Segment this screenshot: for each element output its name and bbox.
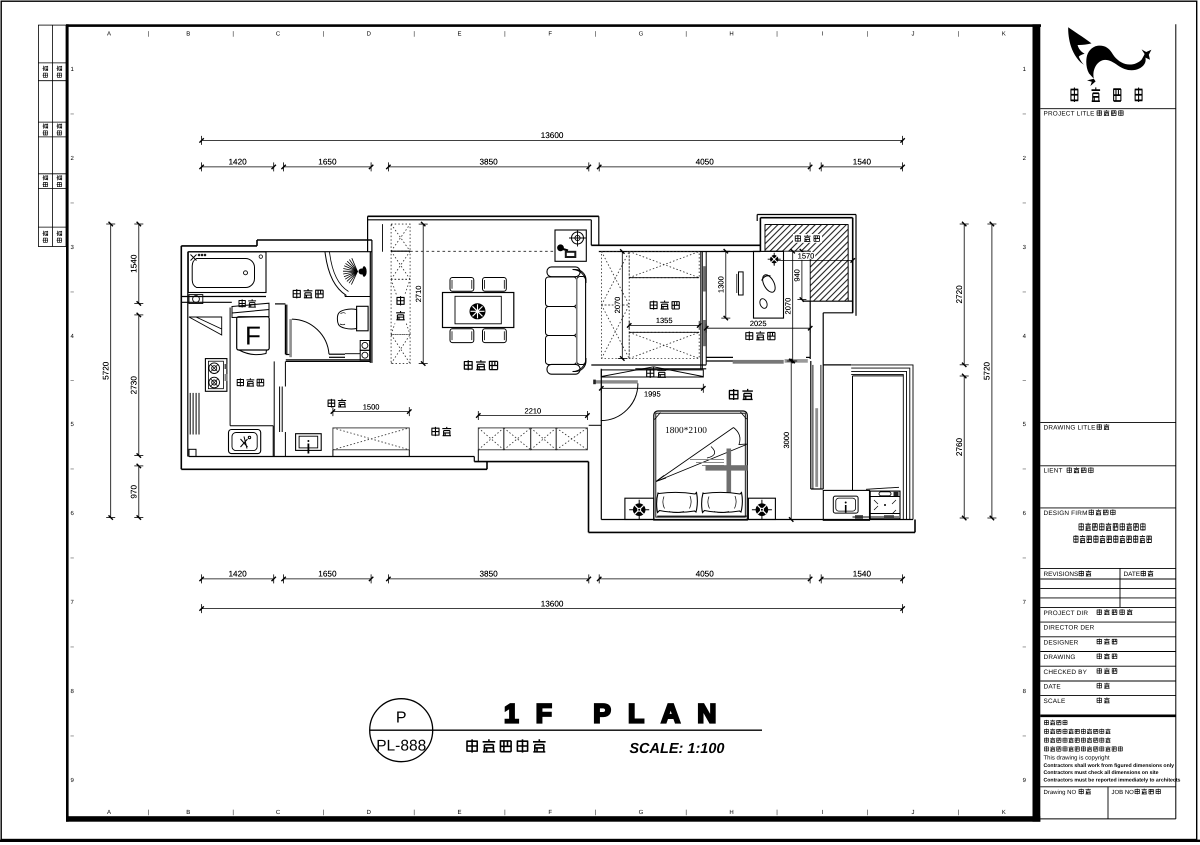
svg-text:D: D	[367, 31, 372, 38]
svg-text:5720: 5720	[102, 361, 111, 380]
svg-text:E: E	[457, 31, 461, 38]
svg-text:F: F	[548, 31, 552, 38]
svg-text:1995: 1995	[644, 389, 661, 398]
svg-text:3850: 3850	[479, 158, 498, 167]
svg-text:F: F	[245, 321, 261, 351]
svg-text:PL-888: PL-888	[376, 738, 426, 755]
svg-text:Drawing NO: Drawing NO	[1044, 789, 1077, 796]
svg-text:1540: 1540	[853, 570, 872, 579]
svg-text:13600: 13600	[541, 131, 564, 140]
svg-text:Contractors shall work from fi: Contractors shall work from figured dime…	[1044, 763, 1175, 769]
svg-text:1300: 1300	[717, 276, 726, 293]
svg-text:PROJECT LITLE: PROJECT LITLE	[1044, 111, 1095, 118]
svg-text:1800*2100: 1800*2100	[665, 426, 707, 436]
svg-text:3000: 3000	[782, 432, 791, 449]
svg-text:1650: 1650	[318, 158, 337, 167]
svg-text:H: H	[729, 809, 733, 816]
svg-text:2710: 2710	[414, 286, 423, 303]
svg-text:DESIGNER: DESIGNER	[1044, 639, 1079, 646]
svg-text:E: E	[457, 809, 461, 816]
svg-text:A: A	[107, 31, 111, 38]
svg-text:PROJECT DIR: PROJECT DIR	[1044, 610, 1089, 617]
svg-text:1F PLAN: 1F PLAN	[504, 699, 733, 729]
svg-text:Contractors must check all dim: Contractors must check all dimensions on…	[1044, 770, 1159, 776]
svg-text:K: K	[1002, 809, 1006, 816]
svg-text:2730: 2730	[130, 376, 139, 395]
svg-text:2070: 2070	[784, 298, 793, 315]
svg-text:DATE: DATE	[1044, 684, 1061, 691]
svg-text:2025: 2025	[750, 319, 767, 328]
svg-text:Contractors must be reported i: Contractors must be reported immediately…	[1044, 777, 1181, 783]
svg-text:DESIGN FIRM: DESIGN FIRM	[1044, 510, 1088, 517]
svg-text:970: 970	[130, 485, 139, 499]
svg-text:SCALE: SCALE	[1044, 698, 1066, 705]
svg-text:1650: 1650	[318, 570, 337, 579]
svg-text:DATE: DATE	[1124, 571, 1141, 578]
svg-text:F: F	[548, 809, 552, 816]
svg-text:J: J	[912, 31, 915, 38]
svg-text:4050: 4050	[696, 158, 715, 167]
svg-text:1570: 1570	[798, 251, 815, 260]
svg-text:4050: 4050	[696, 570, 715, 579]
svg-text:1355: 1355	[656, 316, 673, 325]
svg-text:2070: 2070	[613, 297, 622, 314]
svg-text:1420: 1420	[228, 158, 247, 167]
svg-text:B: B	[186, 31, 190, 38]
svg-text:1540: 1540	[853, 158, 872, 167]
svg-text:J: J	[912, 809, 915, 816]
svg-text:G: G	[639, 31, 644, 38]
svg-text:C: C	[276, 31, 281, 38]
svg-text:1500: 1500	[363, 402, 380, 411]
svg-text:940: 940	[793, 269, 802, 282]
svg-text:C: C	[276, 809, 281, 816]
svg-text:1540: 1540	[130, 254, 139, 273]
svg-text:P: P	[396, 710, 407, 727]
svg-text:2720: 2720	[955, 285, 964, 304]
svg-text:REVISIONS: REVISIONS	[1044, 571, 1079, 578]
svg-text:G: G	[639, 809, 644, 816]
svg-text:This drawing is copyright: This drawing is copyright	[1044, 755, 1110, 762]
svg-text:13600: 13600	[541, 599, 564, 608]
svg-text:K: K	[1002, 31, 1006, 38]
svg-text:A: A	[107, 809, 111, 816]
svg-text:H: H	[729, 31, 733, 38]
svg-text:B: B	[186, 809, 190, 816]
svg-text:DIRECTOR DER: DIRECTOR DER	[1044, 625, 1095, 632]
svg-text:2210: 2210	[525, 406, 542, 415]
svg-text:JOB NO: JOB NO	[1112, 789, 1135, 796]
svg-text:5720: 5720	[983, 361, 992, 380]
svg-text:D: D	[367, 809, 372, 816]
svg-text:SCALE: 1:100: SCALE: 1:100	[629, 741, 724, 757]
svg-text:DRAWING LITLE: DRAWING LITLE	[1044, 425, 1096, 432]
svg-text:CHECKED BY: CHECKED BY	[1044, 669, 1088, 676]
svg-text:3850: 3850	[479, 570, 498, 579]
svg-text:2760: 2760	[955, 437, 964, 456]
svg-text:LIENT: LIENT	[1044, 468, 1063, 475]
svg-text:DRAWING: DRAWING	[1044, 654, 1076, 661]
svg-text:1420: 1420	[228, 570, 247, 579]
